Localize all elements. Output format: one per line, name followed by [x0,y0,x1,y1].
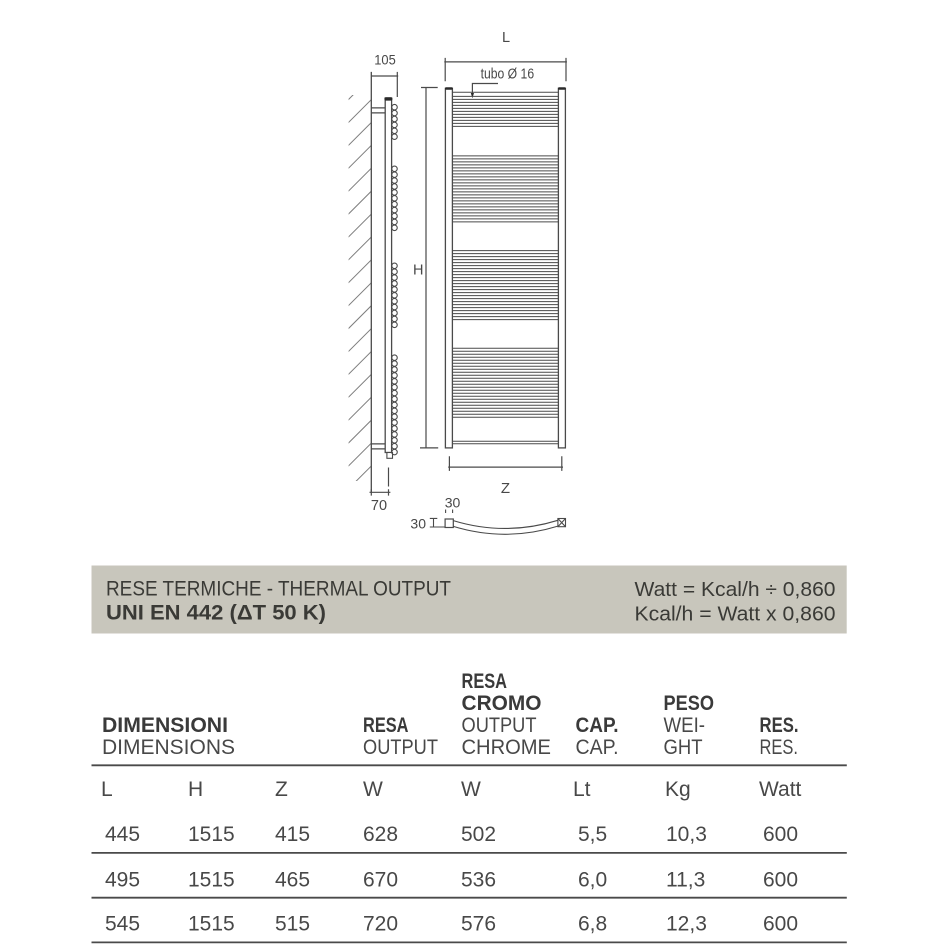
svg-text:RESA: RESA [363,714,409,737]
svg-text:720: 720 [363,913,398,936]
svg-text:10,3: 10,3 [666,823,707,846]
svg-text:W: W [363,778,383,801]
svg-text:Watt = Kcal/h ÷ 0,860: Watt = Kcal/h ÷ 0,860 [635,579,836,601]
svg-text:515: 515 [275,913,310,936]
svg-text:RESA: RESA [462,670,508,693]
svg-text:L: L [101,778,113,801]
svg-text:628: 628 [363,823,398,846]
svg-text:30: 30 [410,516,426,532]
svg-text:105: 105 [374,52,396,68]
svg-text:600: 600 [763,913,798,936]
svg-text:W: W [461,778,481,801]
svg-text:465: 465 [275,868,310,891]
svg-text:1515: 1515 [188,913,235,936]
svg-text:30: 30 [445,495,461,511]
svg-text:WEI-: WEI- [664,714,706,737]
svg-text:11,3: 11,3 [666,868,705,891]
svg-text:70: 70 [371,498,387,514]
svg-text:Z: Z [275,778,288,801]
svg-text:Lt: Lt [573,778,591,801]
svg-text:502: 502 [461,823,496,846]
svg-text:495: 495 [105,868,140,891]
svg-text:545: 545 [105,913,140,936]
svg-text:1515: 1515 [188,868,235,891]
svg-text:Kg: Kg [665,778,691,801]
svg-text:Watt: Watt [759,778,802,801]
svg-text:UNI EN 442 (ΔT 50 K): UNI EN 442 (ΔT 50 K) [106,602,326,625]
svg-text:CAP.: CAP. [576,714,619,737]
svg-text:CAP.: CAP. [576,736,619,759]
svg-text:OUTPUT: OUTPUT [462,714,537,737]
svg-text:PESO: PESO [664,692,715,715]
svg-text:RES.: RES. [760,736,799,759]
svg-text:6,0: 6,0 [578,868,607,891]
svg-text:DIMENSIONS: DIMENSIONS [102,736,235,759]
svg-text:H: H [188,778,203,801]
svg-text:1515: 1515 [188,823,235,846]
svg-text:670: 670 [363,868,398,891]
svg-text:OUTPUT: OUTPUT [363,736,438,759]
svg-text:415: 415 [275,823,310,846]
svg-text:RES.: RES. [760,714,799,737]
svg-text:DIMENSIONI: DIMENSIONI [102,714,228,737]
svg-text:Z: Z [501,480,510,497]
svg-text:5,5: 5,5 [578,823,607,846]
svg-text:Kcal/h = Watt x 0,860: Kcal/h = Watt x 0,860 [635,604,836,626]
svg-text:6,8: 6,8 [578,913,607,936]
svg-text:600: 600 [763,823,798,846]
svg-text:CHROME: CHROME [462,736,552,759]
svg-text:576: 576 [461,913,496,936]
svg-text:RESE TERMICHE - THERMAL OUTPUT: RESE TERMICHE - THERMAL OUTPUT [106,578,451,601]
svg-text:536: 536 [461,868,496,891]
svg-text:tubo Ø 16: tubo Ø 16 [481,66,534,82]
svg-text:H: H [413,262,423,278]
svg-text:600: 600 [763,868,798,891]
svg-text:GHT: GHT [664,736,703,759]
svg-text:L: L [502,30,510,46]
svg-text:445: 445 [105,823,140,846]
svg-text:12,3: 12,3 [666,913,707,936]
svg-text:CROMO: CROMO [462,692,542,715]
